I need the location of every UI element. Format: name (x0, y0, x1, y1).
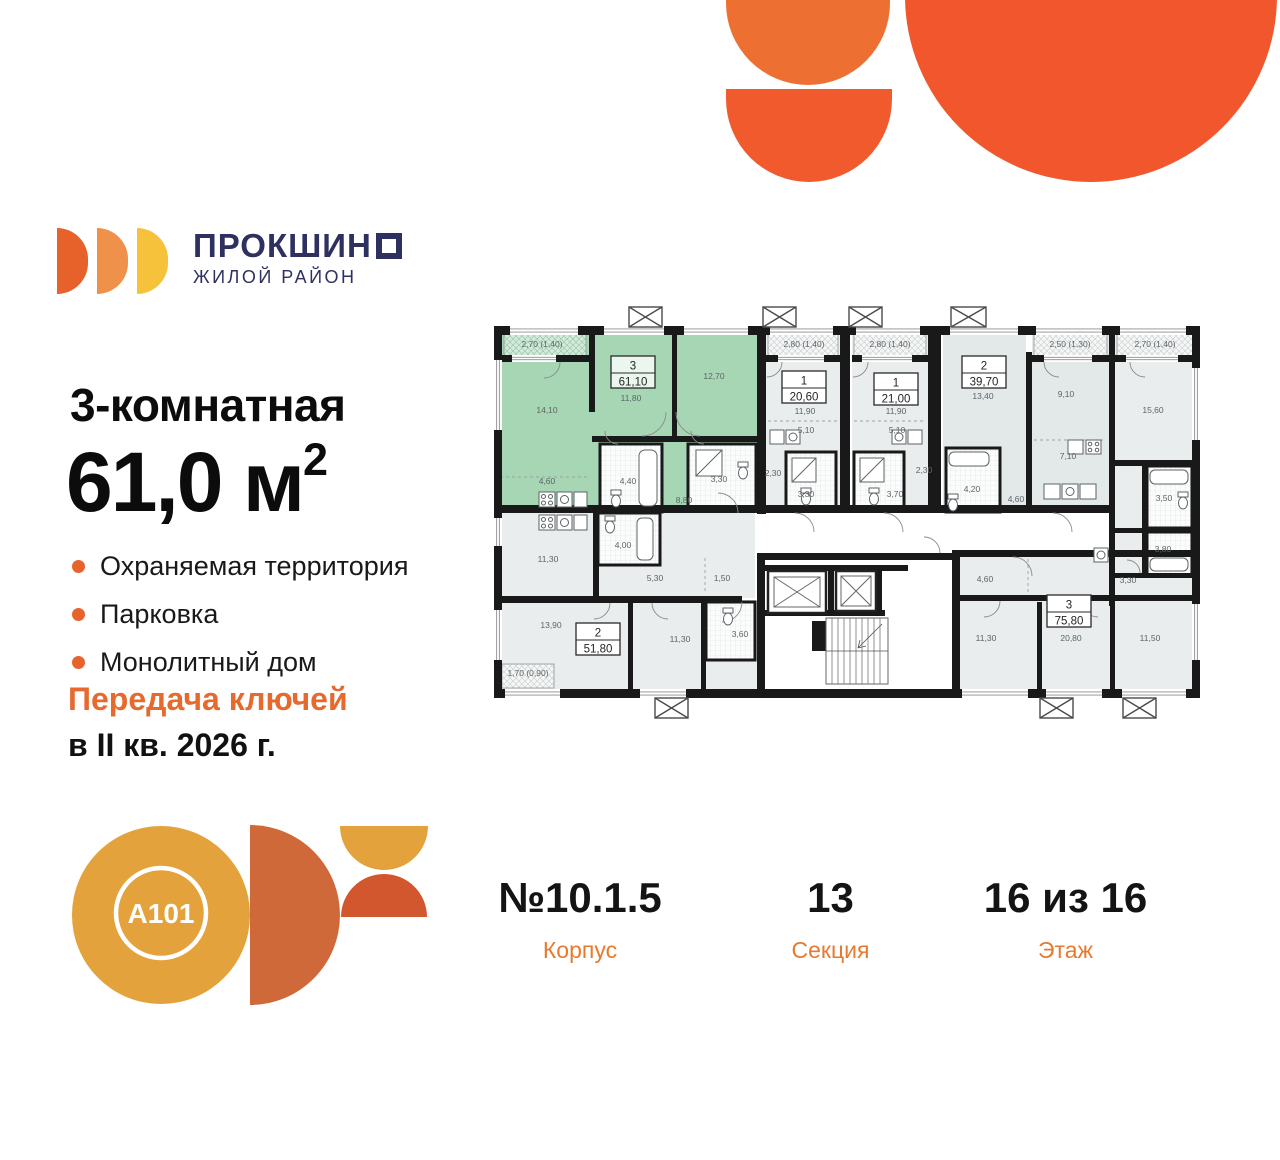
room-area-label: 11,30 (670, 634, 691, 644)
keys-handover-line1: Передача ключей (68, 681, 348, 718)
room-area-label: 11,50 (1140, 633, 1161, 643)
a101-logo: A101 (70, 820, 434, 1012)
building-number: №10.1.5 (455, 874, 705, 922)
room-area-label: 3,80 (1155, 544, 1172, 554)
room-area-label: 4,40 (620, 476, 637, 486)
footer-section: 13 Секция (733, 874, 928, 964)
room-area-label: 11,80 (621, 393, 642, 403)
decor-semicircle-small-bottom (726, 89, 892, 182)
svg-text:2: 2 (981, 361, 987, 373)
brand-name: ПРОКШИН (193, 228, 402, 264)
room-area-label: 4,60 (539, 476, 556, 486)
room-area-label: 11,90 (795, 406, 816, 416)
floor-number: 16 из 16 (948, 874, 1183, 922)
brand-subtitle: ЖИЛОЙ РАЙОН (193, 267, 402, 288)
room-area-label: 2,50 (1,30) (1049, 339, 1090, 349)
a101-label: A101 (128, 898, 195, 929)
svg-text:1: 1 (801, 376, 807, 388)
svg-text:2: 2 (595, 628, 601, 640)
feature-item: Парковка (72, 599, 408, 630)
room-area-label: 11,30 (976, 633, 997, 643)
logo-semicircle-3-icon (137, 228, 168, 294)
svg-text:3: 3 (1066, 600, 1072, 612)
room-area-label: 14,10 (536, 405, 558, 415)
room-area-label: 3,30 (1120, 575, 1137, 585)
unit-info-box: 239,70 (962, 356, 1006, 389)
a101-semicircle-down-icon (340, 826, 428, 870)
area-value: 61,0 м (66, 435, 303, 529)
decor-large-circle (905, 0, 1277, 182)
room-area-label: 3,60 (732, 629, 749, 639)
logo-square-o-icon (376, 233, 402, 259)
bullet-icon (72, 656, 85, 669)
svg-text:51,80: 51,80 (584, 644, 613, 656)
room-area-label: 3,50 (1156, 493, 1173, 503)
prokshino-logo: ПРОКШИН ЖИЛОЙ РАЙОН (57, 228, 402, 294)
room-area-label: 11,90 (886, 406, 907, 416)
room-area-label: 9,10 (1058, 389, 1075, 399)
feature-item: Охраняемая территория (72, 551, 408, 582)
room-area-label: 13,40 (972, 391, 994, 401)
area-superscript: 2 (303, 434, 328, 485)
brand-name-text: ПРОКШИН (193, 228, 372, 264)
bullet-icon (72, 608, 85, 621)
section-number: 13 (733, 874, 928, 922)
svg-text:20,60: 20,60 (790, 392, 819, 404)
room-area-label: 1,70 (0,90) (507, 668, 548, 678)
floor-label: Этаж (948, 937, 1183, 964)
svg-text:1: 1 (893, 378, 899, 390)
stairs (826, 618, 888, 684)
a101-semicircle-up-icon (341, 874, 427, 917)
room-area-label: 5,10 (798, 425, 815, 435)
feature-label: Парковка (100, 599, 218, 630)
unit-info-box: 251,80 (576, 623, 620, 656)
room-area-label: 1,50 (714, 573, 731, 583)
room-area-label: 13,90 (540, 620, 562, 630)
room-area-label: 2,30 (916, 465, 933, 475)
room-area-label: 4,60 (1008, 494, 1025, 504)
room-area-label: 4,60 (977, 574, 994, 584)
room-area-label: 2,80 (1,40) (869, 339, 910, 349)
room-area-label: 4,00 (615, 540, 632, 550)
building-label: Корпус (455, 937, 705, 964)
room-area-label: 7,10 (1060, 451, 1077, 461)
svg-text:39,70: 39,70 (970, 377, 999, 389)
promo-card: ПРОКШИН ЖИЛОЙ РАЙОН 3-комнатная 61,0 м2 … (0, 0, 1280, 1160)
feature-label: Монолитный дом (100, 647, 317, 678)
bullet-icon (72, 560, 85, 573)
listing-title: 3-комнатная (70, 378, 345, 432)
room-area-label: 11,30 (538, 554, 559, 564)
room-area-label: 5,10 (889, 425, 906, 435)
elevator-shafts (768, 571, 876, 613)
floor-plan: 2,70 (1,40)14,1011,8012,704,604,403,308,… (488, 298, 1204, 740)
unit-info-box: 121,00 (874, 373, 918, 406)
logo-semicircle-1-icon (57, 228, 88, 294)
unit-info-box: 375,80 (1047, 595, 1091, 628)
room-area-label: 8,80 (676, 495, 693, 505)
keys-handover-line2: в II кв. 2026 г. (68, 727, 276, 764)
svg-text:61,10: 61,10 (619, 377, 648, 389)
a101-halfcircle-icon (250, 825, 340, 1005)
feature-label: Охраняемая территория (100, 551, 408, 582)
room-area-label: 2,30 (765, 468, 782, 478)
svg-text:21,00: 21,00 (882, 394, 911, 406)
room-area-label: 2,80 (1,40) (783, 339, 824, 349)
room-area-label: 20,80 (1060, 633, 1082, 643)
room-area-label: 3,30 (798, 489, 815, 499)
room-area-label: 3,30 (711, 474, 728, 484)
room-area-label: 4,20 (964, 484, 981, 494)
svg-text:75,80: 75,80 (1055, 616, 1084, 628)
section-label: Секция (733, 937, 928, 964)
room-area-label: 5,30 (647, 573, 664, 583)
footer-floor: 16 из 16 Этаж (948, 874, 1183, 964)
room-area-label: 2,70 (1,40) (1134, 339, 1175, 349)
room-area-label: 12,70 (703, 371, 725, 381)
svg-text:3: 3 (630, 361, 636, 373)
unit-info-box: 361,10 (611, 356, 655, 389)
feature-list: Охраняемая территория Парковка Монолитны… (72, 551, 408, 695)
decor-semicircle-small-top (726, 0, 890, 85)
room-area-label: 15,60 (1142, 405, 1164, 415)
unit-info-box: 120,60 (782, 371, 826, 404)
room-area-label: 2,70 (1,40) (521, 339, 562, 349)
feature-item: Монолитный дом (72, 647, 408, 678)
listing-area: 61,0 м2 (66, 434, 328, 531)
footer-building: №10.1.5 Корпус (455, 874, 705, 964)
logo-semicircle-2-icon (97, 228, 128, 294)
room-area-label: 3,70 (887, 489, 904, 499)
